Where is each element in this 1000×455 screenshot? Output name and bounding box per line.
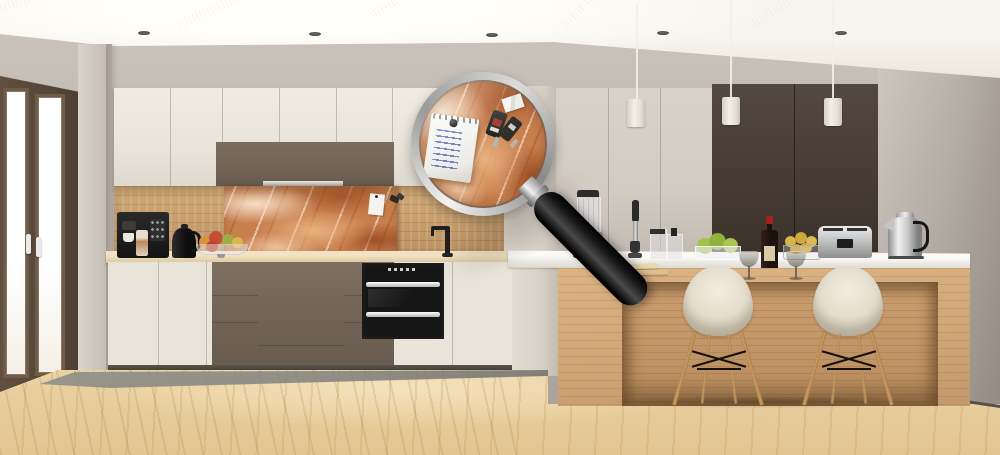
toaster-slots [823, 228, 867, 231]
bowl [695, 246, 741, 260]
oven-handle [366, 312, 440, 317]
brown-base-section [212, 262, 394, 372]
glass-foot [789, 277, 803, 280]
glass-bowl [786, 251, 806, 267]
kettle-lid [181, 224, 188, 229]
fruit-bowl [196, 228, 246, 258]
hand-blender-shaft [633, 221, 638, 241]
chair [683, 266, 755, 412]
drawer-seam [212, 322, 258, 323]
pendant-cord [832, 2, 834, 99]
faucet-tip [431, 229, 434, 236]
chair-shell [813, 266, 883, 336]
door-seam [206, 262, 207, 365]
chair-wire [697, 368, 741, 370]
coffee-machine-buttons [150, 219, 165, 241]
toaster-display [837, 239, 853, 248]
chair-wire [827, 368, 871, 370]
kettle-handle [913, 221, 929, 252]
hand-blender-bell [630, 241, 640, 253]
storage-jar [650, 229, 667, 260]
door-seam [660, 88, 661, 252]
stand-base [628, 253, 642, 258]
wine-bottle [761, 216, 778, 270]
storage-jar [667, 234, 683, 260]
door-seam [158, 262, 159, 365]
coffee-group-head [122, 221, 136, 230]
window-pane [35, 94, 65, 376]
panel-seam [794, 84, 795, 252]
chair-shell [683, 266, 753, 336]
kitchen-scene [0, 0, 1000, 455]
bottle-label [764, 246, 775, 261]
window [0, 76, 80, 396]
ceiling-spotlight [138, 31, 150, 35]
ceiling-spotlight [486, 33, 498, 37]
drawer-seam [212, 295, 258, 296]
jar-pump [671, 228, 677, 236]
pendant-cord [636, 4, 638, 100]
island-niche [622, 282, 938, 406]
door-seam [170, 88, 171, 190]
marble-splashback [224, 186, 397, 258]
glass-bowl [739, 251, 759, 267]
door-seam [279, 88, 280, 144]
hand-blender-handle [632, 200, 639, 222]
chair [813, 266, 885, 412]
drawer-seam [258, 345, 344, 346]
bottle-cap [766, 216, 773, 224]
oven-display [388, 268, 416, 271]
kettle-base [888, 256, 924, 259]
pendant-cord [730, 0, 732, 98]
coffee-machine [117, 210, 171, 258]
ceiling-spotlight [835, 31, 847, 35]
pendant-light [824, 98, 842, 126]
pendant-light [722, 97, 740, 125]
window-handle [26, 234, 31, 254]
oven-glass [368, 289, 438, 307]
apple-bowl [695, 230, 739, 258]
wine-glass [786, 251, 806, 281]
island-floor-shadow [556, 397, 972, 412]
door-seam [336, 88, 337, 144]
ceiling-spotlight [657, 31, 669, 35]
pin-small [375, 195, 378, 198]
bowl-stem [217, 254, 225, 258]
ceiling-spotlight [309, 32, 321, 36]
toaster [818, 226, 872, 258]
oven [362, 263, 444, 339]
window-handle [36, 237, 41, 257]
door-seam [608, 88, 609, 252]
latte-glass [136, 230, 148, 256]
jar-lid [650, 229, 665, 234]
oven-handle [366, 282, 440, 287]
window-pane [3, 88, 29, 378]
coffee-cup [123, 233, 134, 242]
hand-blender [628, 200, 642, 258]
pendant-light [627, 99, 645, 127]
steel-kettle [886, 212, 930, 260]
